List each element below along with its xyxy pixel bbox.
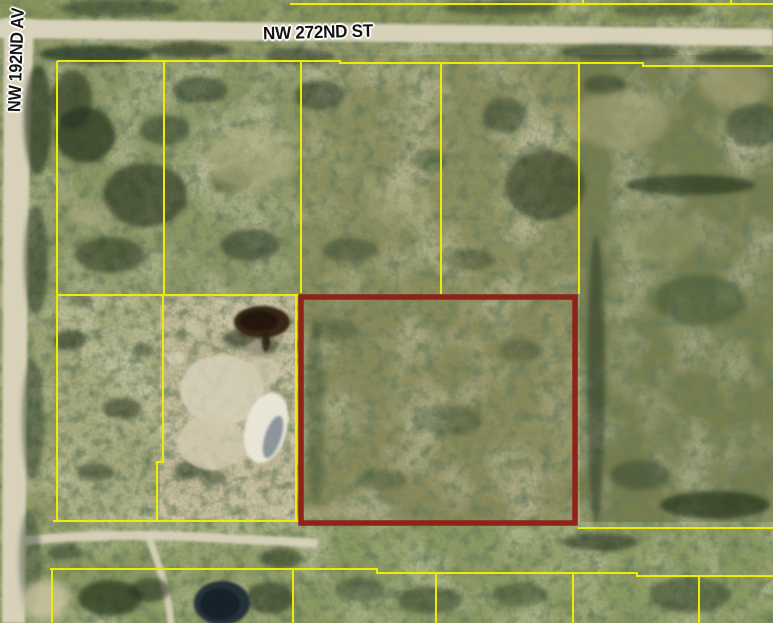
- south-pond: [194, 581, 250, 623]
- terrain-base: [0, 0, 773, 623]
- aerial-parcel-map: NW 272ND ST NW 192ND AV: [0, 0, 773, 623]
- aerial-photo: [0, 0, 773, 623]
